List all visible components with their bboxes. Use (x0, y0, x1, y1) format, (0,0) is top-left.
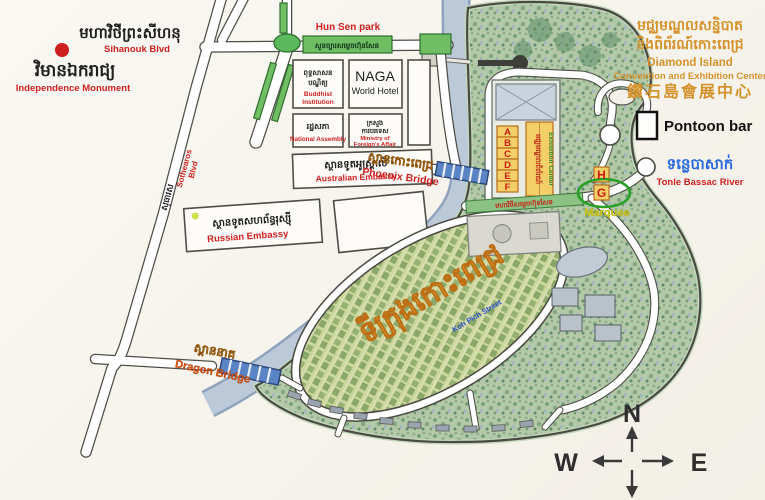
river-en: Tonle Bassac River (657, 177, 744, 188)
map-canvas: សួនច្បារសម្តេចហ៊ុនសែន ពុទ្ធសាសន បណ្ឌិត្យ… (0, 0, 765, 500)
marquee-label: Marquee (584, 207, 629, 219)
culdesac-north (600, 125, 620, 145)
culdesac-east (637, 158, 655, 176)
compass-n: N (623, 400, 641, 428)
independence-khmer: វិមានឯករាជ្យ (33, 59, 115, 81)
hall-e: E (504, 171, 510, 182)
assembly-khmer: រដ្ឋសភា (307, 122, 330, 132)
header-chinese: 鑽石島會展中心 (627, 82, 753, 101)
hall-h: H (597, 168, 606, 182)
header-en-1: Diamond Island (647, 57, 733, 69)
hall-d: D (504, 160, 511, 171)
naga-subtitle: World Hotel (352, 86, 399, 96)
river-labels: ទន្លេបាសាក់ Tonle Bassac River (657, 154, 744, 188)
exhibition-center-hall: មជ្ឈមណ្ឌលពិព័រណ៍ Exhibition Center (526, 122, 554, 196)
hall-a: A (504, 127, 511, 138)
buddhist-khmer-1: ពុទ្ធសាសន (304, 70, 333, 78)
header-khmer-1: មជ្ឈមណ្ឌលសន្និបាត (637, 16, 743, 34)
exhibition-khmer: មជ្ឈមណ្ឌលពិព័រណ៍ (534, 134, 543, 185)
ministry-khmer-1: ក្រសួង (367, 119, 383, 128)
compass-s: S (624, 496, 640, 500)
hall-f: F (505, 182, 511, 193)
sihanouk-khmer: មហាវិថីព្រះសីហនុ (79, 23, 181, 44)
ministry-en-2: Foreign's Affair (354, 142, 397, 148)
exhibition-en: Exhibition Center (547, 132, 554, 186)
header-khmer-2: និងពិព័រណ៍កោះពេជ្រ (636, 35, 743, 53)
pontoon-bar-symbol (637, 112, 657, 139)
hun-sen-park-label: Hun Sen park (316, 22, 381, 33)
compass-w: W (554, 449, 578, 477)
city-blocks: សួនច្បារសម្តេចហ៊ុនសែន ពុទ្ធសាសន បណ្ឌិត្យ… (184, 34, 451, 253)
halls-a-f: A B C D E F (497, 126, 518, 193)
dragon-bridge-khmer: ស្ពាននាគ (193, 341, 237, 363)
buddhist-en-1: Buddhist (304, 91, 333, 98)
independence-monument-dot (55, 43, 69, 57)
compass-e: E (691, 449, 708, 477)
buddhist-en-2: Institution (302, 99, 333, 106)
independence-en: Independence Monument (16, 83, 131, 94)
sothearos-khmer: សុធារស (159, 183, 177, 212)
river-khmer: ទន្លេបាសាក់ (667, 154, 734, 173)
empty-block-east (408, 60, 430, 145)
pontoon-bar: Pontoon bar (637, 112, 752, 139)
ministry-khmer-2: ការបរទេស (362, 128, 390, 135)
hun-sen-park-strip-label: សួនច្បារសម្តេចហ៊ុនសែន (315, 41, 379, 51)
small-park (420, 34, 451, 54)
buddhist-khmer-2: បណ្ឌិត្យ (308, 78, 328, 87)
hall-b: B (504, 138, 511, 149)
hall-c: C (504, 149, 511, 160)
header-en-2: Convention and Exhibition Center (613, 71, 765, 82)
hall-g: G (597, 186, 606, 200)
pontoon-bar-label: Pontoon bar (664, 118, 752, 135)
convention-complex: A B C D E F មជ្ឈមណ្ឌលពិព័រណ៍ Exhibition … (492, 80, 560, 198)
sihanouk-en: Sihanouk Blvd (104, 44, 170, 55)
assembly-en: National Assembly (290, 136, 347, 143)
naga-title: NAGA (355, 68, 395, 84)
koh-pich-map: សួនច្បារសម្តេចហ៊ុនសែន ពុទ្ធសាសន បណ្ឌិត្យ… (0, 0, 765, 500)
